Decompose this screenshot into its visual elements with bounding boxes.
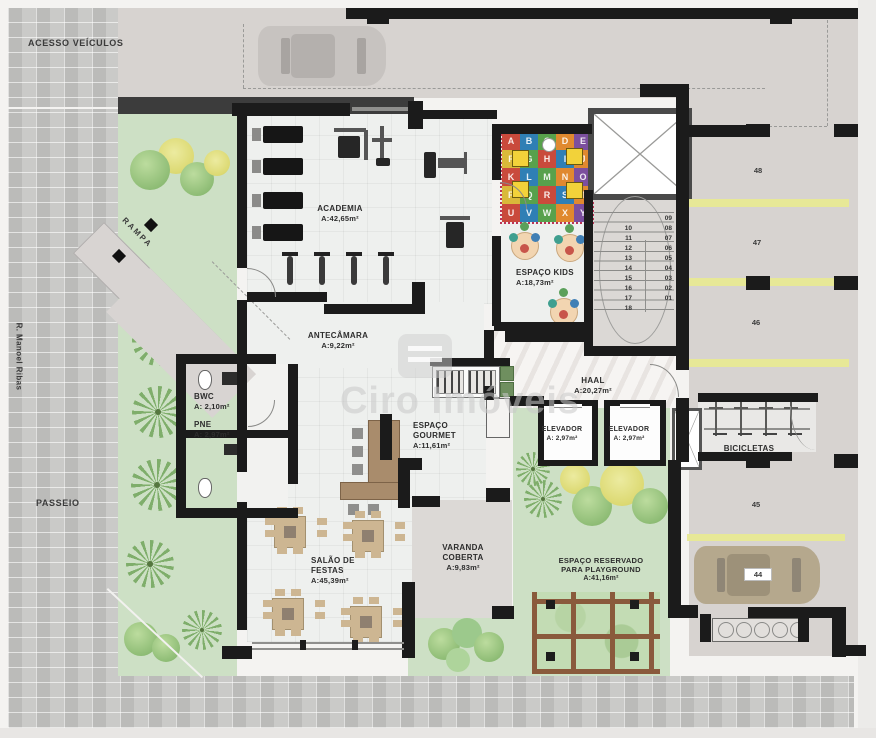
room-area: A: 2,97m² [194,430,254,439]
room-name: ANTECÂMARA [308,331,368,340]
room-name: ELEVADOR [609,426,650,433]
gym-machine [372,138,392,142]
mat-letter-tile: A [502,132,520,150]
room-area: A: 2,97m² [540,435,584,443]
gym-machine [438,158,464,168]
room-label-playground: ESPAÇO RESERVADO PARA PLAYGROUND A:41,16… [556,556,646,584]
stair-step-number: 07 [646,236,672,243]
wall [367,19,389,24]
stair-step-number: 13 [606,256,632,263]
mat-letter-tile: X [556,204,574,222]
gym-machine [380,126,384,158]
pergola-knot [630,600,639,609]
bicycle [758,398,774,436]
wall [492,606,514,619]
gym-machine [364,130,368,160]
wall [492,124,501,180]
wall [402,582,415,658]
exercise-bike [314,252,330,285]
room-label-pne: PNE A: 2,97m² [194,420,254,439]
bush [446,648,470,672]
column [746,276,770,290]
stair-step-number: 11 [606,236,632,243]
stair-step-number: 15 [606,276,632,283]
room-label-varanda: VARANDA COBERTA A:9,83m² [432,543,494,572]
palm-tree [126,540,174,588]
wall [232,103,350,116]
gym-machine [338,136,360,158]
pergola-knot [546,600,555,609]
property-dashed-line [827,20,828,126]
mat-letter-tile: B [520,132,538,150]
wall [408,101,423,129]
sidewalk-joint-line [8,107,118,109]
pergola-knot [630,652,639,661]
toilet [198,478,212,498]
wall [346,8,858,19]
room-name: BWC [194,392,214,401]
stair-step-numbers-left: 101112131415161718 [606,226,632,312]
wall [352,640,358,650]
room-area: A:9,22m² [298,341,378,350]
room-area: A: 2,97m² [607,435,651,443]
right-margin [858,0,876,738]
wall [324,304,420,314]
wall [176,354,276,364]
watermark-logo [398,334,452,378]
stool [352,446,363,457]
kids-table [556,234,584,262]
bush [152,634,180,662]
stair-step-number: 01 [646,296,672,303]
bicycle [708,398,724,436]
stair-step-number: 03 [646,276,672,283]
parking-spot-number: 44 [744,568,772,581]
room-name: ESPAÇO RESERVADO PARA PLAYGROUND [559,556,644,574]
kids-seat [566,148,583,165]
room-label-elevador-2: ELEVADOR A: 2,97m² [607,426,651,443]
floor-plan: RAMPA ABCDEFGHIJKLMNOPQRSTUVWXY [0,0,876,738]
palm-tree [182,610,222,650]
car-top-view [258,26,386,86]
plant-box [500,366,514,381]
room-area: A:9,83m² [432,563,494,572]
wall [484,330,494,362]
street-strip [0,728,876,738]
pergola-knot [546,652,555,661]
kids-table [511,232,539,260]
room-name: ELEVADOR [542,426,583,433]
wall [668,460,681,610]
exercise-bike [282,252,298,285]
party-table [274,516,306,548]
exercise-bike [346,252,362,285]
mat-letter-tile: W [538,204,556,222]
party-table [350,606,382,638]
column [834,454,858,468]
wall [492,236,501,326]
room-area: A:45,39m² [311,576,373,585]
wall [640,84,682,97]
stair-step-number: 10 [606,226,632,233]
column [746,124,770,137]
room-area: A:42,65m² [300,214,380,223]
room-label-salao-festas: SALÃO DE FESTAS A:45,39m² [311,556,373,585]
stair-step-number: 14 [606,266,632,273]
parking-divider [689,359,849,367]
gym-machine [440,216,470,220]
room-name: PNE [194,420,211,429]
window [252,642,404,644]
wall [844,645,866,656]
column [834,124,858,137]
sidewalk-bottom [8,676,854,728]
kids-seat [512,150,529,167]
stair-step-number: 18 [606,306,632,313]
tree [204,150,230,176]
room-name: ESPAÇO KIDS [516,268,574,277]
room-label-bicicletas: BICICLETAS [706,444,792,454]
parking-spot-number: 48 [745,166,771,175]
room-label-espaco-gourmet: ESPAÇO GOURMET A:11,61m² [413,421,471,450]
room-name: SALÃO DE FESTAS [311,556,355,575]
stair-step-number: 05 [646,256,672,263]
stair-step-number: 12 [606,246,632,253]
bicycle [733,398,749,436]
wall [748,607,834,618]
wall [584,346,682,356]
parking-guide-line [243,24,244,88]
room-area: A: 2,10m² [194,402,254,411]
wall [798,614,809,642]
window [252,648,404,650]
utility-meters [712,618,806,642]
room-label-elevador-1: ELEVADOR A: 2,97m² [540,426,584,443]
wall [668,605,698,618]
mat-letter-tile: M [538,168,556,186]
parking-spot-number: 45 [743,500,769,509]
room-area: A:18,73m² [516,278,586,287]
gym-machine [464,152,467,174]
stool [352,428,363,439]
bush [474,632,504,662]
room-area: A:11,61m² [413,441,471,450]
sink [224,444,238,455]
room-area: A:41,16m² [556,575,646,584]
window [352,107,408,111]
ball [542,138,556,152]
stair-step-number: 09 [646,216,672,223]
parking-spot-number: 46 [743,318,769,327]
wall [237,502,247,630]
stair-step-number: 04 [646,266,672,273]
treadmill [252,158,304,175]
gym-machine [424,152,436,178]
wall [300,640,306,650]
exercise-bike [378,252,394,285]
party-table [352,520,384,552]
gym-machine [334,128,366,132]
wall [494,124,592,134]
wall [505,330,590,342]
treadmill [252,192,304,209]
tree [130,150,170,190]
treadmill [252,126,304,143]
wall [398,458,422,470]
sink [222,372,238,385]
parking-divider [689,199,849,207]
sidewalk-left [8,8,118,728]
stool [368,504,379,515]
sidewalk-label: PASSEIO [36,498,80,508]
wall [700,614,711,642]
wall [486,488,510,502]
stair-step-number: 02 [646,286,672,293]
wall [412,496,440,507]
kids-seat [566,182,583,199]
treadmill [252,224,304,241]
room-label-academia: ACADEMIA A:42,65m² [300,204,380,223]
wall [698,393,818,402]
wall [398,470,410,508]
wall [676,398,689,462]
wall [222,646,252,659]
room-label-espaco-kids: ESPAÇO KIDS A:18,73m² [516,268,586,287]
gourmet-counter [340,482,400,500]
parking-divider [687,534,845,541]
room-name: ESPAÇO GOURMET [413,421,456,440]
stair-step-number: 17 [606,296,632,303]
watermark-text: Ciro Imóveis [320,380,600,423]
room-name: ACADEMIA [317,204,363,213]
street-name-label: R. Manoel Ribas [15,312,24,402]
stair-step-numbers-right: 090807060504030201 [646,216,672,302]
wall [412,282,425,314]
gym-machine [376,158,390,166]
stair-step-number: 08 [646,226,672,233]
mat-letter-tile: H [538,150,556,168]
party-table [272,598,304,630]
stool [352,464,363,475]
mat-letter-tile: R [538,186,556,204]
stair-step-number: 16 [606,286,632,293]
vehicle-access-label: ACESSO VEÍCULOS [28,38,124,48]
driveway-top [118,8,858,98]
toilet [198,370,212,390]
wall [770,19,792,24]
wall [423,110,497,119]
parking-spot-number: 47 [744,238,770,247]
room-label-antecamara: ANTECÂMARA A:9,22m² [298,331,378,350]
room-name: BICICLETAS [724,444,774,453]
gym-machine [446,222,464,248]
room-name: VARANDA COBERTA [442,543,484,562]
tree [632,488,668,524]
column [834,276,858,290]
stair-step-number: 06 [646,246,672,253]
wall [288,364,298,484]
room-label-bwc: BWC A: 2,10m² [194,392,254,411]
wall [237,114,247,268]
